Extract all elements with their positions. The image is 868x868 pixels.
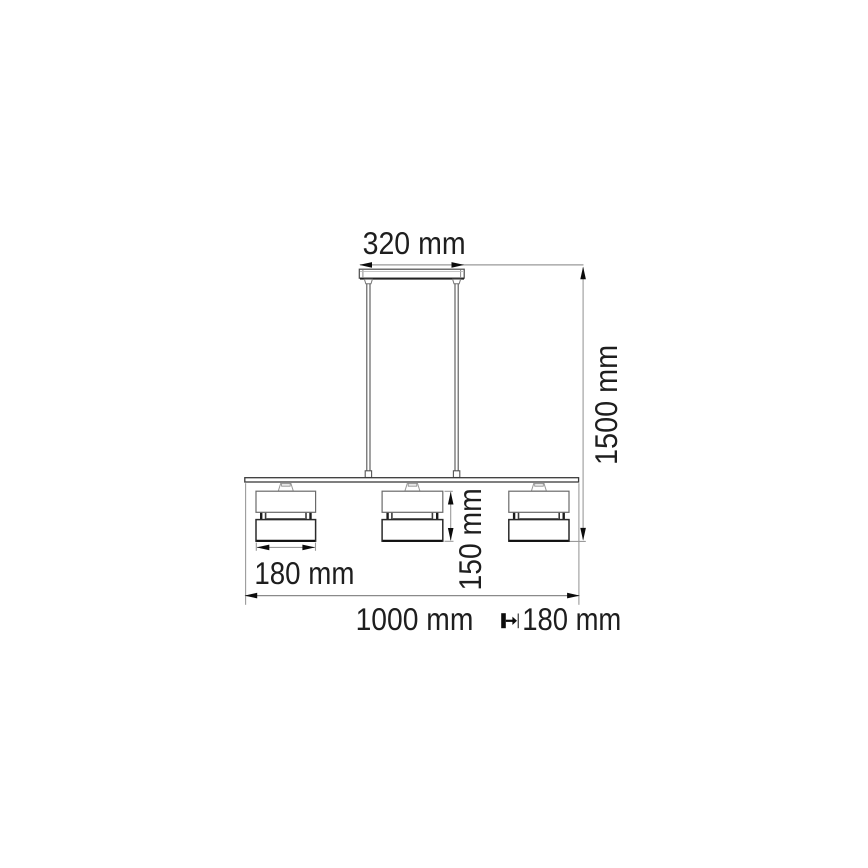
svg-text:1000 mm: 1000 mm [356,601,474,637]
svg-text:320 mm: 320 mm [363,225,466,261]
svg-text:180 mm: 180 mm [254,555,354,591]
svg-text:180 mm: 180 mm [522,601,621,637]
svg-text:1500 mm: 1500 mm [588,345,624,465]
svg-text:150 mm: 150 mm [452,488,488,590]
